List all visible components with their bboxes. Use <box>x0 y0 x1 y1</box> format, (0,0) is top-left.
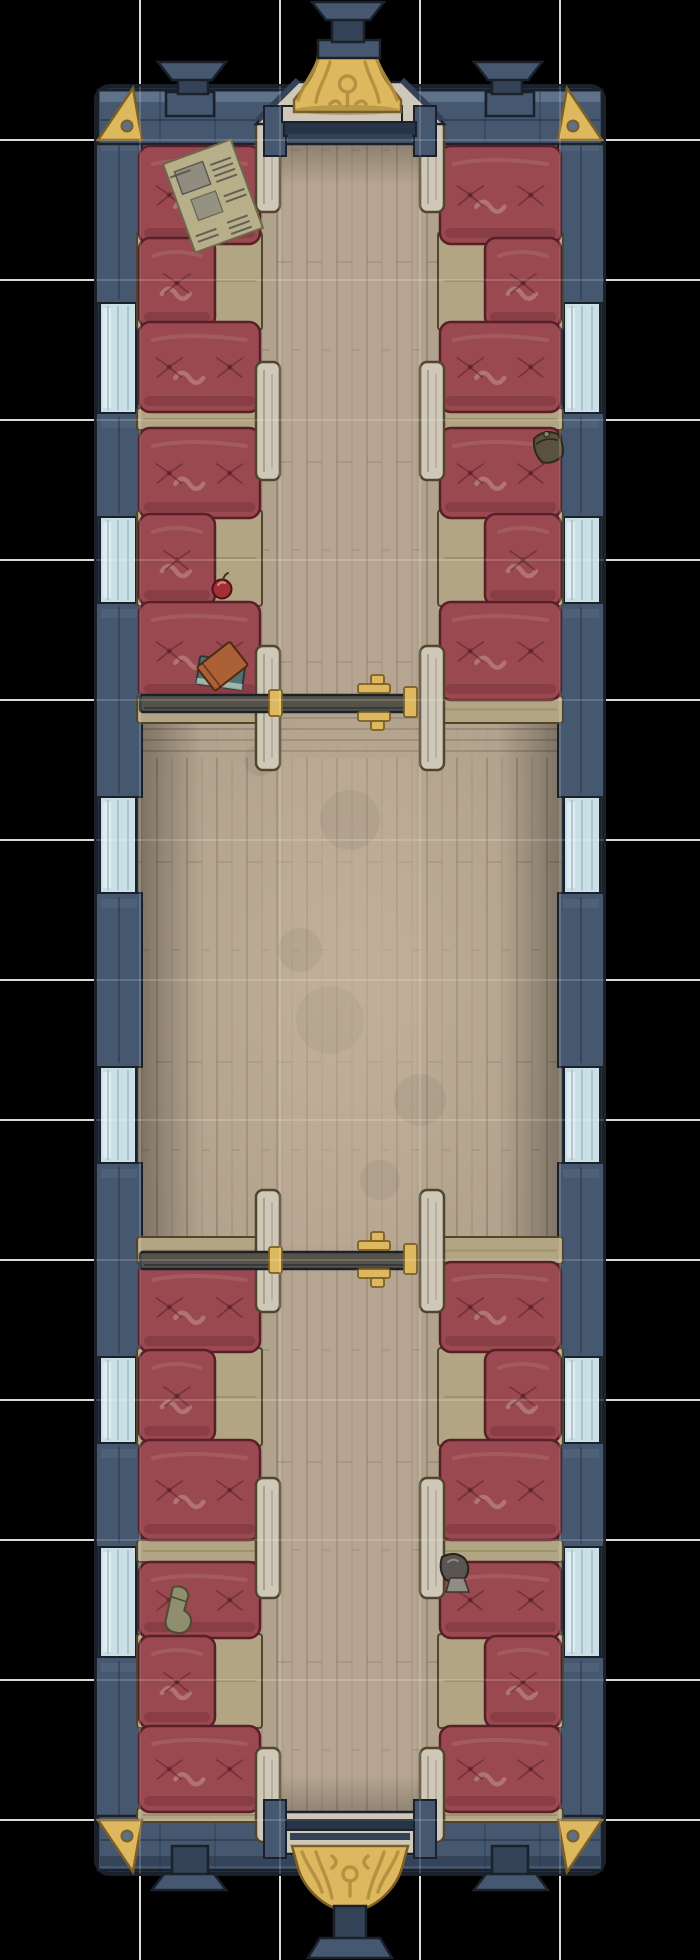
aisle-panel <box>256 120 280 212</box>
pillar-highlight <box>563 1449 599 1458</box>
rivet <box>568 1831 579 1842</box>
prop-newspaper <box>163 140 263 253</box>
aisle-panel <box>420 1478 444 1598</box>
kettle-cup <box>446 1578 469 1592</box>
tuft-button <box>166 364 172 370</box>
tuft-button <box>174 1679 180 1685</box>
tuft-button <box>227 1766 233 1772</box>
window-glass <box>564 1067 600 1163</box>
smokestack-top-left <box>158 62 226 116</box>
aisle-panel <box>256 1190 280 1312</box>
window-glass <box>100 1357 136 1443</box>
window-right <box>564 517 600 603</box>
panel-wood <box>256 362 280 480</box>
tuft-button <box>520 280 526 286</box>
cushion-tuft <box>156 1481 182 1500</box>
panel-wood <box>420 120 444 212</box>
panel-wood <box>256 646 280 770</box>
seat-back-divider <box>438 1808 563 1822</box>
cushion-tuft <box>217 1298 243 1317</box>
tuft-button <box>528 648 534 654</box>
latch-hook <box>371 1278 384 1287</box>
cushion-tuft <box>518 1760 544 1779</box>
cushion-sheen <box>153 1650 201 1654</box>
cushion-tuft <box>457 1760 483 1779</box>
cushion-highlight-squiggle <box>476 658 504 668</box>
footwell-floor <box>438 1348 563 1446</box>
end-wall-band-bottom <box>98 1816 602 1870</box>
bench-group-lower-left <box>137 1237 262 1822</box>
wall-pillar <box>96 1163 142 1357</box>
cushion-shade <box>445 396 556 406</box>
wall-pillar <box>558 603 604 797</box>
wall-pillar <box>96 136 142 303</box>
panel-wood <box>420 1748 444 1842</box>
latch-bar <box>358 712 390 721</box>
window-right <box>564 797 600 893</box>
wall-pillar-right <box>558 1443 604 1547</box>
end-wall-shadow-bottom <box>100 1856 600 1866</box>
window-highlight <box>567 1362 575 1438</box>
gusset-bottom-right <box>558 1820 602 1872</box>
book-spine <box>202 663 220 687</box>
cushion-highlight-squiggle <box>175 1774 203 1784</box>
window-glass <box>100 303 136 413</box>
wall-pillar-right <box>558 603 604 797</box>
tuft-button <box>520 1393 526 1399</box>
window-highlight <box>103 1552 111 1652</box>
door-track-end-cap <box>404 1244 417 1274</box>
tuft-button <box>227 1597 233 1603</box>
cushion-tuft <box>518 1481 544 1500</box>
tuft-button <box>467 1487 473 1493</box>
wall-pillar-left <box>96 1657 142 1824</box>
wall-pillar <box>558 1163 604 1357</box>
corner-gussets <box>98 88 602 1872</box>
floor-shade-left <box>138 140 202 1820</box>
aisle-partition-panels <box>256 120 444 1842</box>
cushion-shade <box>144 1622 255 1632</box>
aisle-panel <box>420 646 444 770</box>
footwell-floor <box>438 232 563 330</box>
door-latch-handle <box>358 1232 390 1250</box>
bench-cushion <box>139 1440 260 1540</box>
cushion-shade <box>144 396 255 406</box>
tuft-button <box>528 192 534 198</box>
door-track-bar <box>140 695 416 712</box>
paper-text-line <box>214 169 235 177</box>
window-left <box>100 797 136 893</box>
cushion-highlight-squiggle <box>175 202 203 212</box>
wall-pillar-left <box>96 413 142 517</box>
cushion-highlight-squiggle <box>175 1497 203 1507</box>
bench-cushion <box>139 1562 260 1638</box>
cushion-tuft <box>457 358 483 377</box>
wall-pillar <box>558 893 604 1067</box>
window-glass <box>564 303 600 413</box>
paper-text-line <box>170 170 191 178</box>
cushion-highlight-squiggle <box>175 658 203 668</box>
tuft-button <box>174 1393 180 1399</box>
gusset-bottom-left <box>98 1820 142 1872</box>
window-glass <box>100 1067 136 1163</box>
cushion-shade <box>445 1336 556 1346</box>
seat-back-divider <box>137 1540 262 1562</box>
tuft-button <box>467 1597 473 1603</box>
door-latch-handle <box>358 1269 390 1287</box>
cushion-sheen <box>153 1454 246 1458</box>
pouch-knot <box>543 431 549 437</box>
battle-map-canvas <box>0 0 700 1960</box>
floor-shade-right <box>498 140 562 1820</box>
pillar-highlight <box>101 1169 137 1178</box>
tuft-button <box>520 557 526 563</box>
panel-wood <box>256 1190 280 1312</box>
pillar-highlight <box>101 1449 137 1458</box>
wall-pillar-left <box>96 1443 142 1547</box>
cushion-sheen <box>454 442 547 446</box>
cushion-highlight-squiggle <box>508 1688 536 1698</box>
window-left <box>100 1067 136 1163</box>
panel-wood <box>256 120 280 212</box>
wall-pillar <box>96 413 142 517</box>
wall-pillar <box>558 1657 604 1824</box>
sock-body <box>164 1585 196 1634</box>
prop-leather-pouch <box>532 429 565 465</box>
floor-threshold-band <box>138 710 562 758</box>
window-left <box>100 303 136 413</box>
cushion-shade <box>144 590 210 600</box>
bench-cushion <box>139 146 260 244</box>
smokestacks <box>152 2 548 1958</box>
window-glass <box>564 1547 600 1657</box>
door-latch-handle <box>358 712 390 730</box>
tuft-button <box>467 1304 473 1310</box>
rivet <box>122 1831 133 1842</box>
roof-rail-right <box>402 80 442 120</box>
window-glass <box>100 797 136 893</box>
bench-cushion <box>440 1440 561 1540</box>
car-end-bottom <box>98 1816 602 1870</box>
tuft-button <box>528 364 534 370</box>
bench-cushion <box>485 1350 561 1442</box>
wall-pillar <box>96 893 142 1067</box>
tuft-button <box>166 1597 172 1603</box>
cushion-highlight-squiggle <box>162 289 190 299</box>
door-track-end-cap <box>269 1247 282 1273</box>
cushion-tuft <box>164 1673 190 1692</box>
cushion-sheen <box>153 1364 201 1368</box>
aisle-panel <box>420 120 444 212</box>
end-wall-vertical-seams <box>160 92 540 142</box>
end-wall-band-top <box>98 90 602 144</box>
cushion-sheen <box>454 1576 547 1580</box>
bench-cushion <box>139 1636 215 1728</box>
cushion-tuft <box>457 1298 483 1317</box>
bench-cushion <box>139 602 260 700</box>
car-floor <box>138 140 562 1820</box>
cushion-sheen <box>454 1276 547 1280</box>
cushion-shade <box>445 684 556 694</box>
cushion-tuft <box>518 186 544 205</box>
bench-group-upper-left <box>137 146 262 723</box>
cushion-shade <box>445 1524 556 1534</box>
apple-highlight <box>218 582 225 585</box>
aisle-panel <box>420 362 444 480</box>
bench-cushion <box>440 428 561 518</box>
cushion-tuft <box>156 186 182 205</box>
wall-pillar-left <box>96 136 142 303</box>
train-car <box>96 2 604 1958</box>
panel-wood <box>420 646 444 770</box>
tuft-button <box>467 648 473 654</box>
wall-pillar-right <box>558 413 604 517</box>
latch-bar <box>358 1269 390 1278</box>
cushion-tuft <box>156 464 182 483</box>
apple-stem <box>223 573 228 580</box>
wall-pillar <box>96 1657 142 1824</box>
pillar-highlight <box>101 609 137 618</box>
vestibule-sill <box>282 106 402 122</box>
floor-planks <box>138 140 562 1820</box>
cushion-highlight-squiggle <box>162 1402 190 1412</box>
smokestack-top-center <box>312 2 384 58</box>
props <box>163 140 565 1635</box>
crest-bell <box>294 54 401 112</box>
vestibule-top <box>256 54 444 156</box>
cushion-sheen <box>153 336 246 340</box>
aisle-panel <box>256 362 280 480</box>
wall-pillar-left <box>96 893 142 1067</box>
footwell-floor <box>137 510 262 606</box>
kettle-body <box>441 1554 469 1582</box>
book-pages <box>196 678 242 690</box>
cushion-shade <box>144 684 255 694</box>
cushion-sheen <box>153 160 246 164</box>
cushion-sheen <box>454 1454 547 1458</box>
cushion-shade <box>490 590 556 600</box>
cushion-highlight-squiggle <box>508 289 536 299</box>
pillar-highlight <box>101 142 137 151</box>
cushion-tuft <box>156 1760 182 1779</box>
footwell-floor <box>438 1634 563 1728</box>
cushion-tuft <box>510 1387 536 1406</box>
tuft-button <box>166 1304 172 1310</box>
paper-sheet <box>163 140 263 253</box>
tuft-button <box>467 1766 473 1772</box>
cushion-sheen <box>499 528 547 532</box>
cushion-highlight-squiggle <box>162 566 190 576</box>
latch-hook <box>371 1232 384 1241</box>
tuft-button <box>166 1487 172 1493</box>
end-wall-vertical-seams <box>160 1818 540 1868</box>
rivet <box>122 121 133 132</box>
window-left <box>100 1357 136 1443</box>
cushion-shade <box>144 1336 255 1346</box>
latch-hook <box>371 721 384 730</box>
cushion-highlight-squiggle <box>476 479 504 489</box>
cushion-highlight-squiggle <box>476 1774 504 1784</box>
book-orange <box>197 641 249 690</box>
sliding-doors <box>140 675 417 1287</box>
pillar-highlight <box>563 419 599 428</box>
window-glass <box>564 517 600 603</box>
tuft-button <box>528 1304 534 1310</box>
wall-pillar-right <box>558 893 604 1067</box>
cushion-tuft <box>156 358 182 377</box>
crest-ornament <box>298 60 397 106</box>
aisle-panel <box>420 1748 444 1842</box>
apple-body <box>213 580 232 599</box>
aisle-panel <box>420 1190 444 1312</box>
gusset-top-right <box>558 88 602 140</box>
tuft-button <box>166 648 172 654</box>
wall-pillar <box>96 603 142 797</box>
seat-back-divider <box>438 1237 563 1264</box>
window-right <box>564 1067 600 1163</box>
cushion-tuft <box>457 464 483 483</box>
window-glass <box>100 517 136 603</box>
tuft-button <box>174 557 180 563</box>
window-highlight <box>103 308 111 408</box>
cushion-tuft <box>156 1591 182 1610</box>
bench-cushion <box>440 322 561 412</box>
smokestack-bottom-right <box>474 1846 548 1890</box>
paper-text-line <box>216 174 237 182</box>
crest-bell <box>292 1846 408 1908</box>
gold-crest-top <box>294 54 401 115</box>
tuft-button <box>528 1766 534 1772</box>
cushion-sheen <box>153 528 201 532</box>
bench-cushion <box>485 238 561 328</box>
cushion-sheen <box>153 1276 246 1280</box>
window-glass <box>564 1357 600 1443</box>
cushion-tuft <box>518 1298 544 1317</box>
tuft-button <box>467 364 473 370</box>
cushion-sheen <box>153 616 246 620</box>
window-highlight <box>567 522 575 598</box>
door-track-bar <box>140 1252 416 1269</box>
cushion-sheen <box>454 336 547 340</box>
cushion-sheen <box>454 616 547 620</box>
pillar-highlight <box>101 899 137 908</box>
window-highlight <box>103 1072 111 1158</box>
tuft-button <box>467 192 473 198</box>
paper-text-line <box>224 189 245 197</box>
cushion-tuft <box>217 1760 243 1779</box>
rivet <box>568 121 579 132</box>
tuft-button <box>174 280 180 286</box>
tuft-button <box>227 364 233 370</box>
paper-text-line <box>212 163 233 171</box>
cushion-shade <box>144 1426 210 1436</box>
cushion-tuft <box>217 642 243 661</box>
cushion-tuft <box>164 274 190 293</box>
gusset-rivets <box>122 121 579 1842</box>
wall-pillar-left <box>96 603 142 797</box>
panel-wood <box>420 1478 444 1598</box>
window-highlight <box>567 308 575 408</box>
cushion-tuft <box>510 1673 536 1692</box>
car-hull <box>96 86 604 1874</box>
wall-pillar-right <box>558 1657 604 1824</box>
panel-wood <box>256 1478 280 1598</box>
paper-text-line <box>198 234 219 242</box>
tuft-button <box>528 1487 534 1493</box>
vestibule-threshold <box>284 122 416 136</box>
cushion-highlight-squiggle <box>175 1313 203 1323</box>
bench-cushion <box>440 1262 561 1352</box>
wall-pillar <box>558 413 604 517</box>
roof-rail-left <box>258 80 298 120</box>
bench-cushion <box>139 428 260 518</box>
cushion-sheen <box>153 1576 246 1580</box>
cushion-shade <box>144 312 210 322</box>
window-right <box>564 303 600 413</box>
pillar-highlight <box>563 1663 599 1672</box>
tuft-button <box>227 648 233 654</box>
gusset-top-left <box>98 88 142 140</box>
window-left <box>100 517 136 603</box>
cushion-sheen <box>499 1364 547 1368</box>
tuft-button <box>227 1304 233 1310</box>
cushion-tuft <box>217 358 243 377</box>
seat-back-divider <box>137 696 262 723</box>
latch-bar <box>358 684 390 693</box>
cushion-highlight-squiggle <box>175 373 203 383</box>
pillar-highlight <box>563 1169 599 1178</box>
paper-text-line <box>210 158 231 166</box>
cushion-highlight-squiggle <box>476 202 504 212</box>
smokestack-top-right <box>474 62 542 116</box>
tuft-button <box>166 470 172 476</box>
vestibule-post-right <box>414 106 436 156</box>
cushion-shade <box>490 312 556 322</box>
tuft-button <box>528 470 534 476</box>
cushion-highlight-squiggle <box>508 1402 536 1412</box>
cushion-highlight-squiggle <box>175 479 203 489</box>
bench-cushion <box>139 238 215 328</box>
cushion-tuft <box>518 642 544 661</box>
vestibule-threshold-inner <box>288 134 412 141</box>
latch-hook <box>371 675 384 684</box>
vestibule-bottom <box>264 1800 436 1908</box>
cushion-shade <box>144 1796 255 1806</box>
vestibule-post-left <box>264 1800 286 1858</box>
pillar-highlight <box>563 899 599 908</box>
paper-photo <box>191 191 223 221</box>
paper-photo <box>174 161 210 194</box>
cushion-tuft <box>457 1591 483 1610</box>
smokestack-bottom-center <box>308 1906 392 1958</box>
footwell-floor <box>137 232 262 330</box>
aisle-panel <box>256 1748 280 1842</box>
cushion-sheen <box>499 252 547 256</box>
kettle-highlight <box>448 1560 458 1562</box>
cushion-sheen <box>454 160 547 164</box>
cushion-tuft <box>217 1591 243 1610</box>
window-right <box>564 1357 600 1443</box>
bench-cushion <box>139 1350 215 1442</box>
panel-wood <box>420 362 444 480</box>
window-highlight <box>103 1362 111 1438</box>
wall-pillar-left <box>96 1163 142 1357</box>
bench-cushion <box>485 514 561 606</box>
cushion-sheen <box>499 1650 547 1654</box>
window-left <box>100 1547 136 1657</box>
wall-pillar <box>558 1443 604 1547</box>
footwell-floor <box>137 1348 262 1446</box>
